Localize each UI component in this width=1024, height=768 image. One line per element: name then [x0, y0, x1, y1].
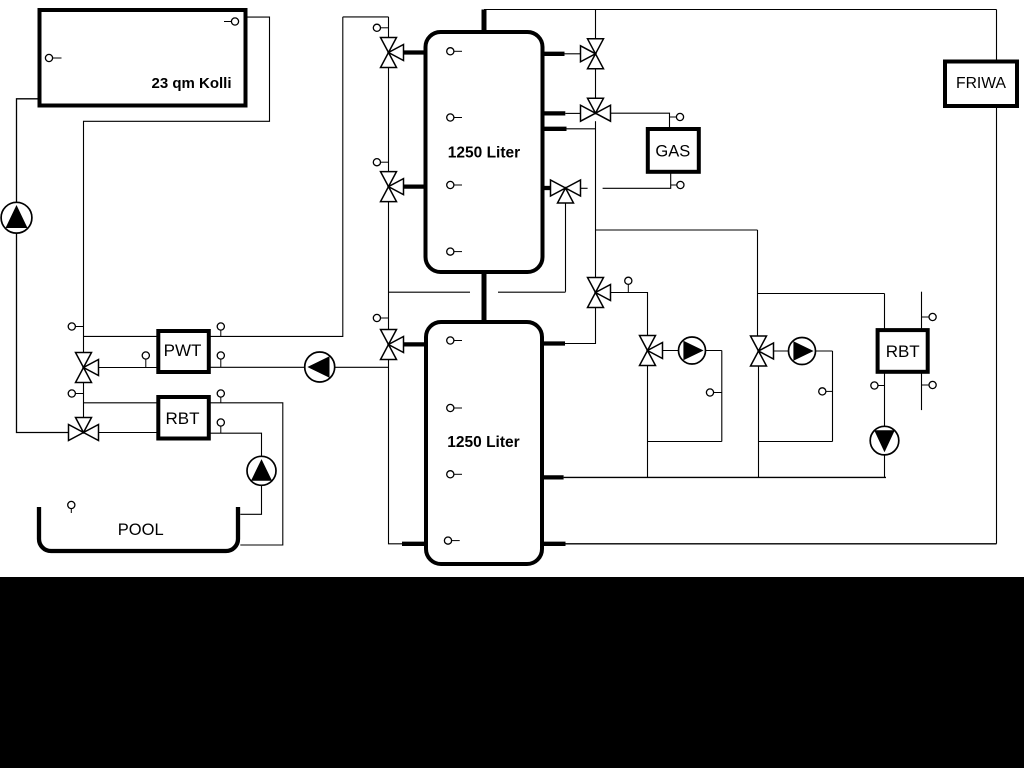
- svg-text:PWT: PWT: [164, 341, 202, 360]
- svg-text:RBT: RBT: [886, 342, 920, 361]
- svg-text:FRIWA: FRIWA: [956, 75, 1006, 92]
- svg-text:1250 Liter: 1250 Liter: [447, 434, 519, 451]
- svg-text:1250 Liter: 1250 Liter: [448, 145, 520, 162]
- svg-text:POOL: POOL: [118, 521, 164, 539]
- svg-text:GAS: GAS: [655, 142, 690, 160]
- svg-text:RBT: RBT: [166, 409, 200, 428]
- svg-text:23 qm Kolli: 23 qm Kolli: [151, 75, 231, 92]
